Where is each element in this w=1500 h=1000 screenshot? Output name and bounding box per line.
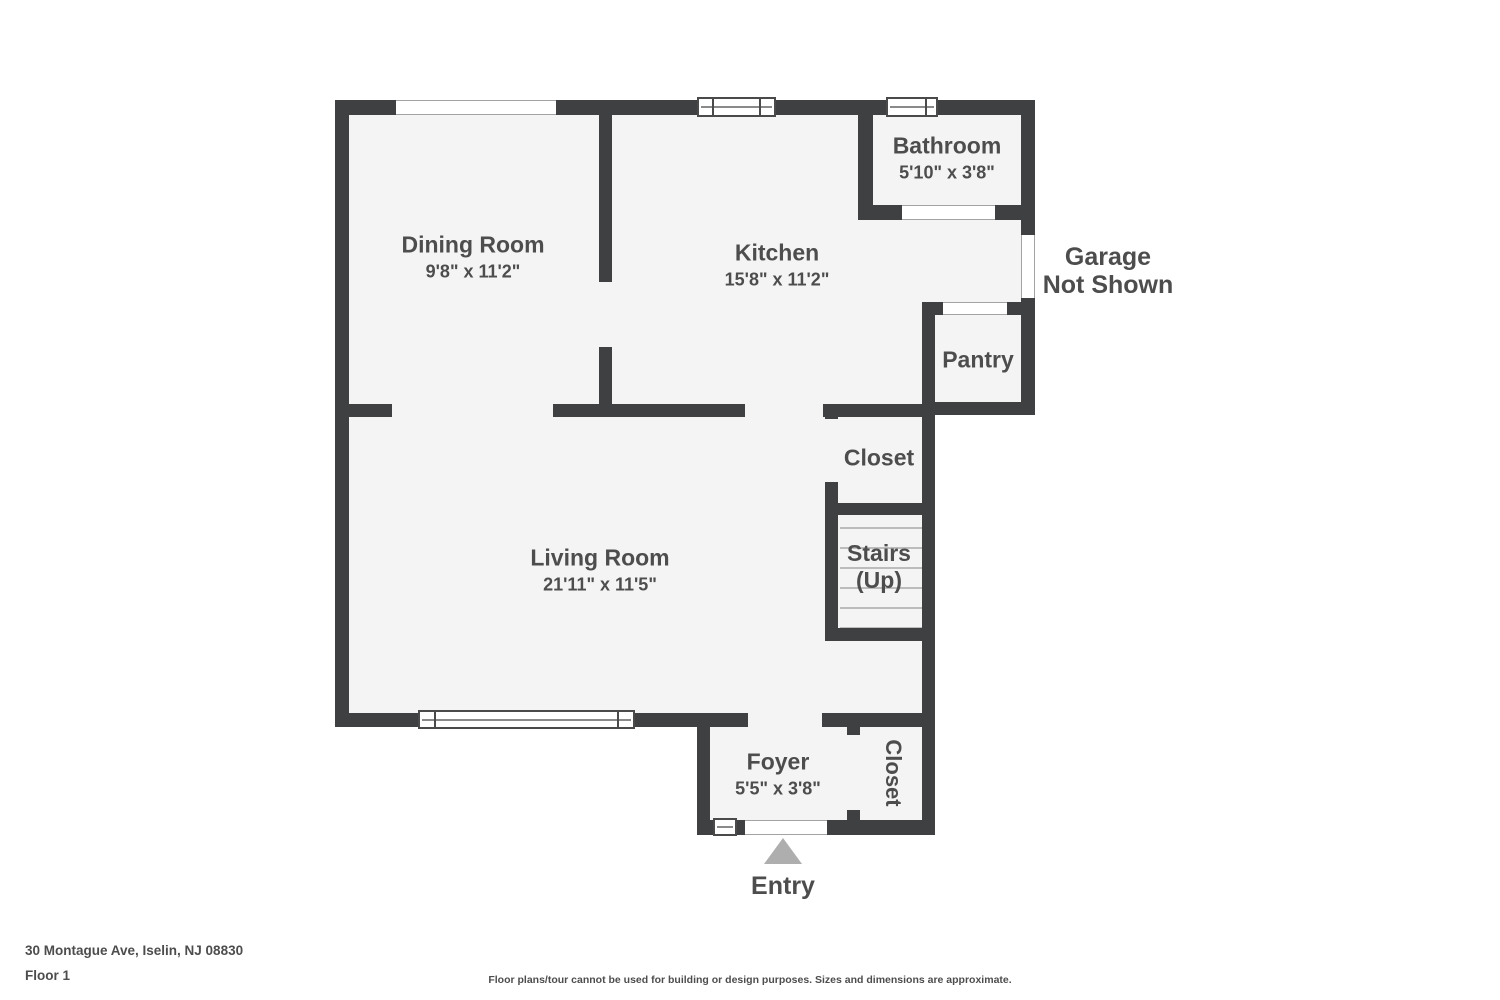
- window-midline: [890, 106, 934, 108]
- window-divider: [925, 99, 927, 115]
- bathroom-door-opening: [902, 205, 995, 220]
- living-room-label: Living Room 21'11" x 11'5": [530, 544, 669, 595]
- garage-note-line2: Not Shown: [1043, 271, 1174, 299]
- kitchen-dims: 15'8" x 11'2": [725, 269, 830, 290]
- stairs-line2: (Up): [847, 567, 911, 594]
- bathroom-window: [886, 97, 938, 117]
- wall-closet-top: [823, 404, 935, 417]
- wall-bathroom-left: [858, 100, 873, 220]
- window-divider: [434, 712, 436, 727]
- dining-window: [396, 100, 556, 115]
- kitchen-name: Kitchen: [725, 239, 830, 266]
- pantry-name: Pantry: [942, 346, 1014, 373]
- hall-closet-label: Closet: [844, 444, 914, 471]
- stair-tread: [840, 607, 922, 609]
- hall-closet-name: Closet: [844, 444, 914, 471]
- bathroom-dims: 5'10" x 3'8": [893, 162, 1002, 183]
- entry-door-opening: [745, 820, 827, 835]
- garage-door-opening: [1021, 235, 1035, 298]
- window-divider: [617, 712, 619, 727]
- wall-kitchen-bottom: [553, 404, 745, 417]
- entry-closet-label: Closet: [880, 739, 906, 806]
- wall-pantry-bottom: [922, 402, 1035, 415]
- kitchen-window: [697, 97, 776, 117]
- foyer-dims: 5'5" x 3'8": [735, 778, 821, 799]
- footer-disclaimer: Floor plans/tour cannot be used for buil…: [488, 974, 1011, 986]
- wall-stair-column-right: [922, 302, 935, 835]
- foyer-name: Foyer: [735, 748, 821, 775]
- hall-closet-door-opening: [825, 419, 838, 482]
- window-divider: [712, 99, 714, 115]
- garage-note: Garage Not Shown: [1043, 243, 1174, 299]
- entry-arrow-icon: [764, 838, 802, 864]
- floor-plan-canvas: Dining Room 9'8" x 11'2" Kitchen 15'8" x…: [0, 0, 1500, 1000]
- entry-label: Entry: [751, 872, 815, 901]
- dining-room-dims: 9'8" x 11'2": [401, 261, 544, 282]
- kitchen-label: Kitchen 15'8" x 11'2": [725, 239, 830, 290]
- footer-address: 30 Montague Ave, Iselin, NJ 08830: [25, 943, 243, 958]
- bathroom-name: Bathroom: [893, 132, 1002, 159]
- footer-floor: Floor 1: [25, 968, 70, 983]
- dining-room-label: Dining Room 9'8" x 11'2": [401, 231, 544, 282]
- pantry-label: Pantry: [942, 346, 1014, 373]
- window-midline: [422, 719, 631, 721]
- wall-dining-living-stub: [335, 404, 392, 417]
- pantry-door-opening: [943, 302, 1007, 315]
- living-room-dims: 21'11" x 11'5": [530, 574, 669, 595]
- foyer-label: Foyer 5'5" x 3'8": [735, 748, 821, 799]
- foyer-closet-door-opening: [847, 735, 860, 810]
- wall-closet-stairs-divider: [825, 503, 935, 515]
- dining-room-name: Dining Room: [401, 231, 544, 258]
- wall-dining-kitchen-upper: [599, 115, 612, 282]
- wall-foyer-left: [697, 727, 710, 835]
- living-foyer-opening: [748, 713, 822, 727]
- foyer-window: [713, 818, 737, 836]
- window-midline: [717, 826, 733, 828]
- living-room-window: [418, 710, 635, 729]
- stair-tread: [840, 527, 922, 529]
- stairs-line1: Stairs: [847, 540, 911, 567]
- wall-stairs-bottom: [825, 628, 935, 641]
- bathroom-label: Bathroom 5'10" x 3'8": [893, 132, 1002, 183]
- window-divider: [759, 99, 761, 115]
- stairs-label: Stairs (Up): [847, 540, 911, 594]
- living-room-name: Living Room: [530, 544, 669, 571]
- garage-note-line1: Garage: [1043, 243, 1174, 271]
